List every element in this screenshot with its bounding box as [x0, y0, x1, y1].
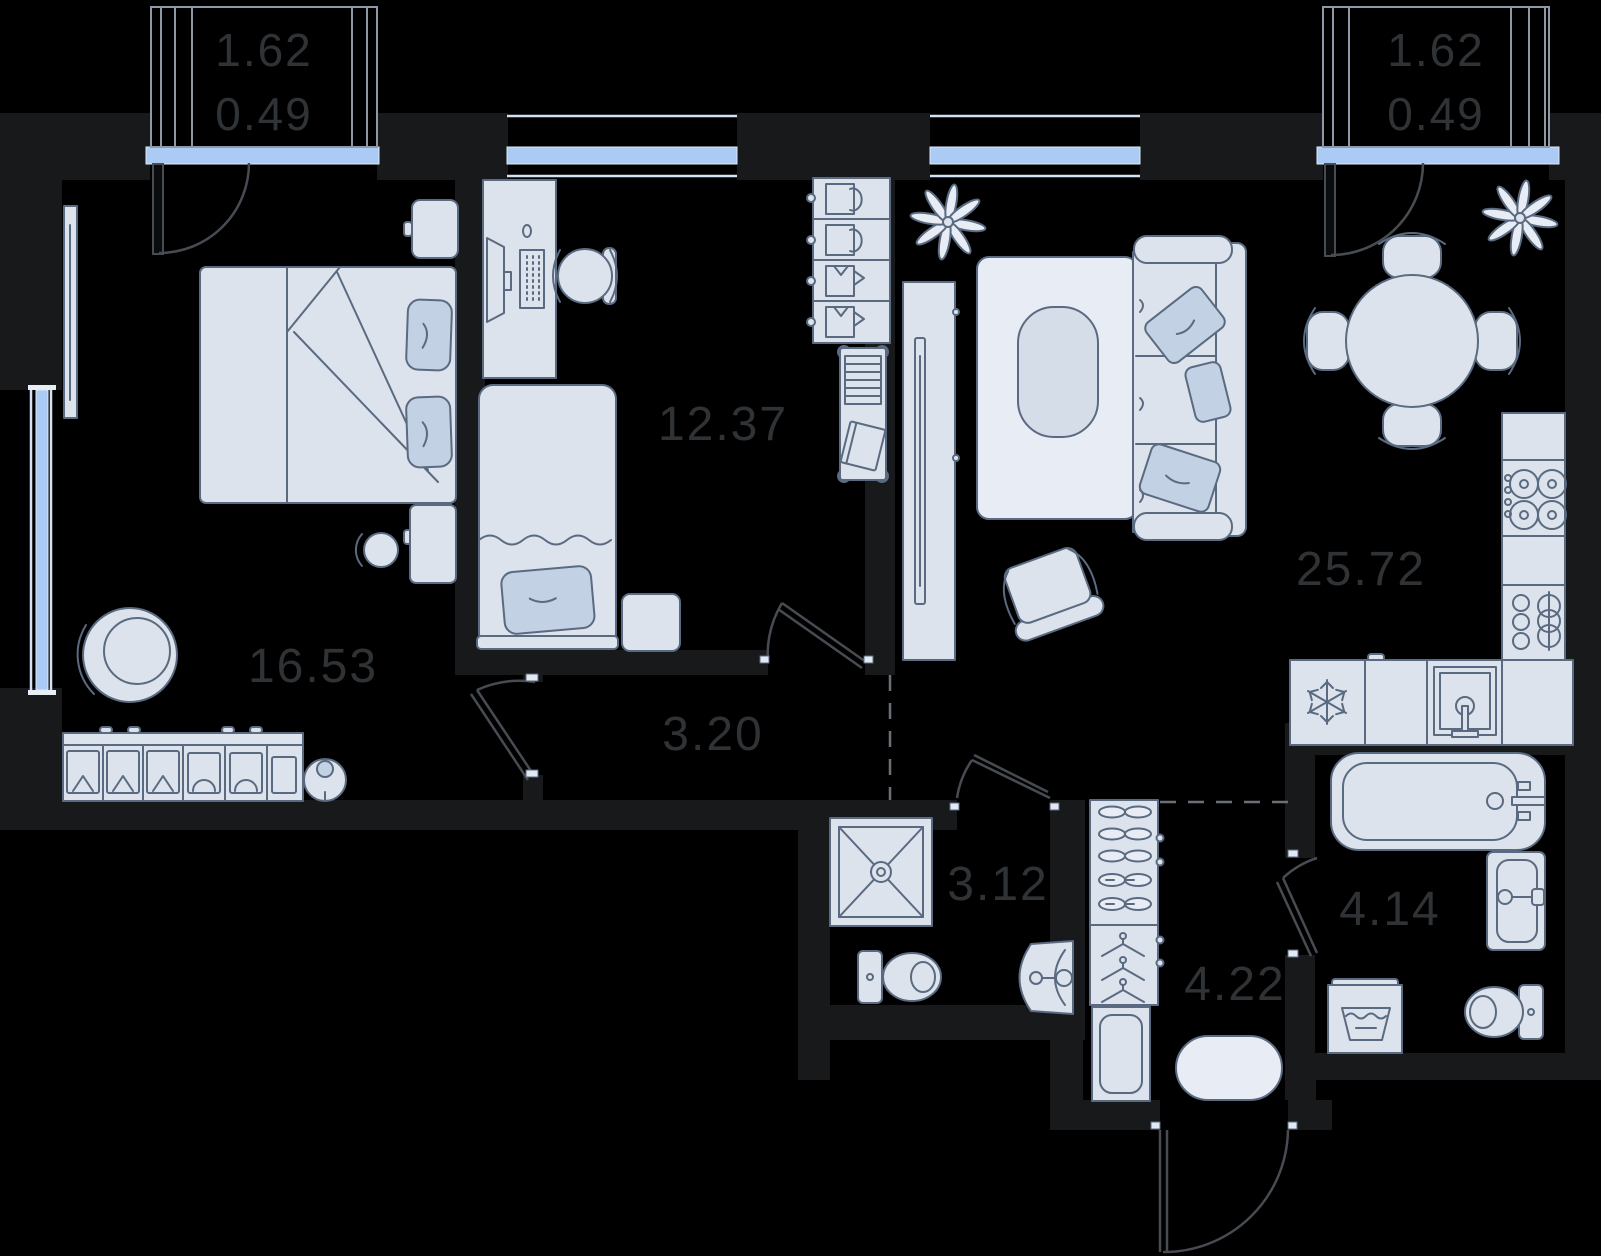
stool [364, 533, 398, 567]
living-kitchen-area-label: 25.72 [1296, 543, 1426, 596]
desk [483, 180, 556, 378]
balcony-right-window [1317, 147, 1559, 164]
bedroom-area-label: 16.53 [248, 640, 378, 693]
coffee-table [1018, 307, 1098, 437]
balcony-left-door [153, 163, 249, 254]
dining-chair [1379, 233, 1445, 278]
robot-vacuum [304, 759, 346, 801]
office-area-label: 12.37 [658, 398, 788, 451]
dining-table [1304, 233, 1520, 449]
closet [1090, 800, 1282, 1101]
floor-plan: 1.62 0.49 1.62 0.49 16.53 12.37 3.20 25.… [0, 0, 1601, 1256]
shower-room [830, 818, 1073, 1014]
plant-icon [1482, 180, 1559, 257]
book-trolley [838, 346, 888, 482]
window-cap [28, 690, 56, 695]
walls [0, 113, 1601, 1130]
window-bedroom [36, 390, 48, 690]
dining-chair [1475, 308, 1520, 374]
window-cap [28, 385, 56, 390]
double-bed [200, 267, 456, 503]
pillow [500, 565, 595, 635]
balcony-left-window [146, 147, 379, 164]
toilet [858, 951, 941, 1003]
single-bed [477, 385, 618, 649]
dining-chair [1304, 308, 1349, 374]
nightstand [622, 594, 680, 651]
pillow [406, 396, 452, 467]
oval-rug [1176, 1036, 1282, 1100]
balcony-left-reduced-area: 0.49 [215, 88, 313, 140]
bathtub [1331, 753, 1545, 850]
office-door [760, 603, 873, 668]
floor-plan-page: 1.62 0.49 1.62 0.49 16.53 12.37 3.20 25.… [0, 0, 1601, 1256]
plant-icon [910, 184, 987, 261]
balcony-right-area: 1.62 [1387, 24, 1485, 76]
washing-machine [1328, 979, 1402, 1053]
pillow [406, 299, 452, 370]
window-office [507, 147, 737, 164]
sofa [1133, 236, 1246, 540]
shower-room-area-label: 3.12 [947, 858, 1048, 911]
vanity-table [356, 505, 456, 583]
balcony-left-area: 1.62 [215, 24, 313, 76]
wardrobe [63, 727, 303, 801]
tv-icon [64, 206, 77, 418]
balcony-right-reduced-area: 0.49 [1387, 88, 1485, 140]
toilet [1465, 985, 1543, 1039]
dining-chair [1379, 404, 1445, 449]
nightstand [404, 200, 458, 258]
shower-room-door [950, 755, 1059, 810]
shower-tray [830, 818, 932, 926]
cabinet [1092, 1007, 1150, 1101]
bathroom-door [1277, 850, 1317, 957]
armchair [994, 542, 1106, 643]
office-chair [553, 248, 617, 304]
bathroom-area-label: 4.14 [1339, 883, 1440, 936]
window-living [930, 147, 1140, 164]
living-kitchen [903, 180, 1573, 745]
entry-door [1151, 1122, 1297, 1252]
bathroom-sink [1487, 852, 1545, 950]
shoe-wardrobe [1090, 800, 1164, 1005]
hallway-area-label: 3.20 [662, 708, 763, 761]
wardrobe [807, 178, 890, 343]
tv-stand [903, 282, 959, 660]
bedroom-door [471, 674, 538, 780]
armchair [78, 608, 177, 702]
closet-area-label: 4.22 [1184, 958, 1285, 1011]
corner-sink [1020, 941, 1074, 1014]
bedroom [63, 200, 458, 801]
